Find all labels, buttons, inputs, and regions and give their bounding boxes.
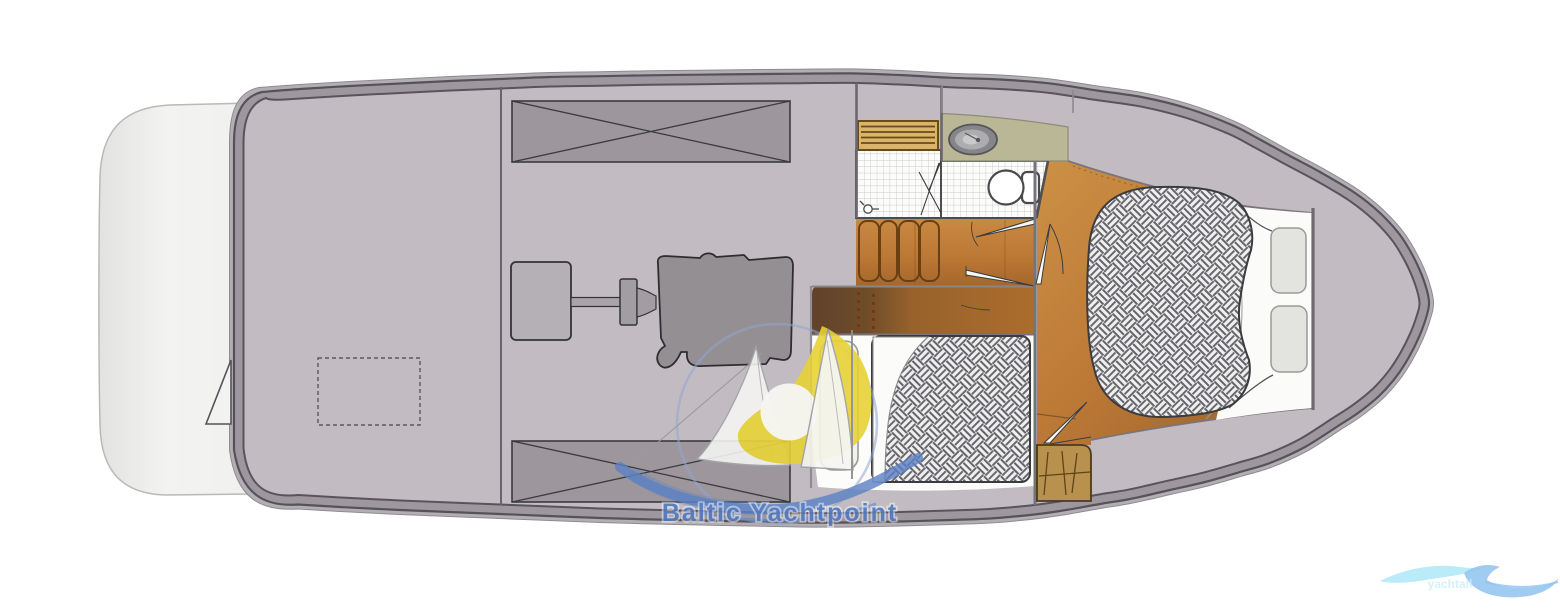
svg-text:Baltic Yachtpoint: Baltic Yachtpoint xyxy=(662,499,898,527)
svg-text:yachtall: yachtall xyxy=(1428,577,1473,591)
